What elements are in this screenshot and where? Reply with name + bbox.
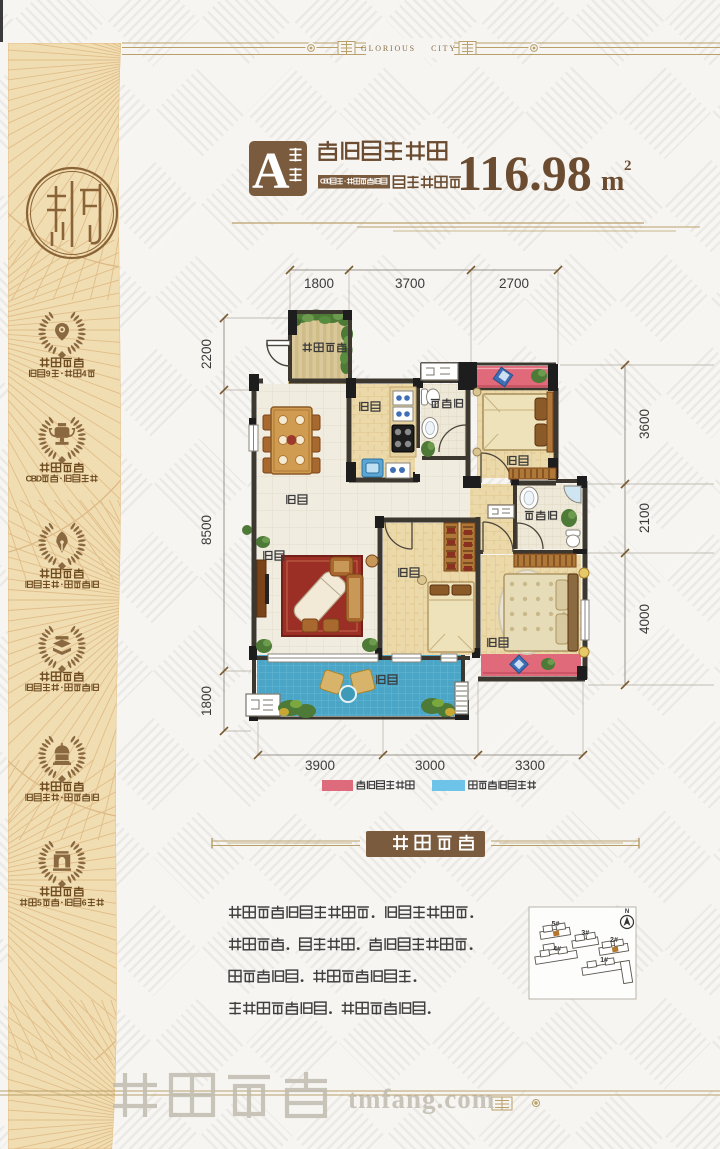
svg-text:m: m (601, 166, 624, 197)
svg-text:9: 9 (46, 368, 51, 378)
svg-text:3000: 3000 (415, 758, 445, 773)
svg-text:5: 5 (37, 897, 42, 907)
svg-text:2700: 2700 (499, 276, 529, 291)
svg-text:3#: 3# (581, 930, 589, 937)
svg-text:D: D (36, 473, 42, 483)
svg-text:tmfang.com: tmfang.com (348, 1084, 495, 1114)
svg-text:A: A (252, 143, 290, 200)
svg-text:1800: 1800 (304, 276, 334, 291)
svg-text:4000: 4000 (637, 604, 652, 634)
svg-text:1#: 1# (600, 957, 608, 964)
svg-text:2200: 2200 (199, 339, 214, 369)
svg-text:6: 6 (82, 897, 87, 907)
svg-text:3700: 3700 (395, 276, 425, 291)
svg-text:3600: 3600 (637, 409, 652, 439)
svg-text:3300: 3300 (515, 758, 545, 773)
svg-text:2100: 2100 (637, 503, 652, 533)
svg-text:GLORIOUS CITY: GLORIOUS CITY (361, 44, 457, 53)
svg-text:4: 4 (82, 368, 87, 378)
svg-text:1800: 1800 (199, 686, 214, 716)
svg-text:4#: 4# (553, 946, 561, 953)
svg-text:116.98: 116.98 (457, 145, 592, 201)
svg-text:3900: 3900 (305, 758, 335, 773)
svg-text:2: 2 (624, 158, 632, 174)
svg-text:2#: 2# (610, 937, 618, 944)
svg-text:8500: 8500 (199, 515, 214, 545)
svg-text:5#: 5# (552, 921, 560, 928)
svg-text:N: N (625, 909, 629, 915)
